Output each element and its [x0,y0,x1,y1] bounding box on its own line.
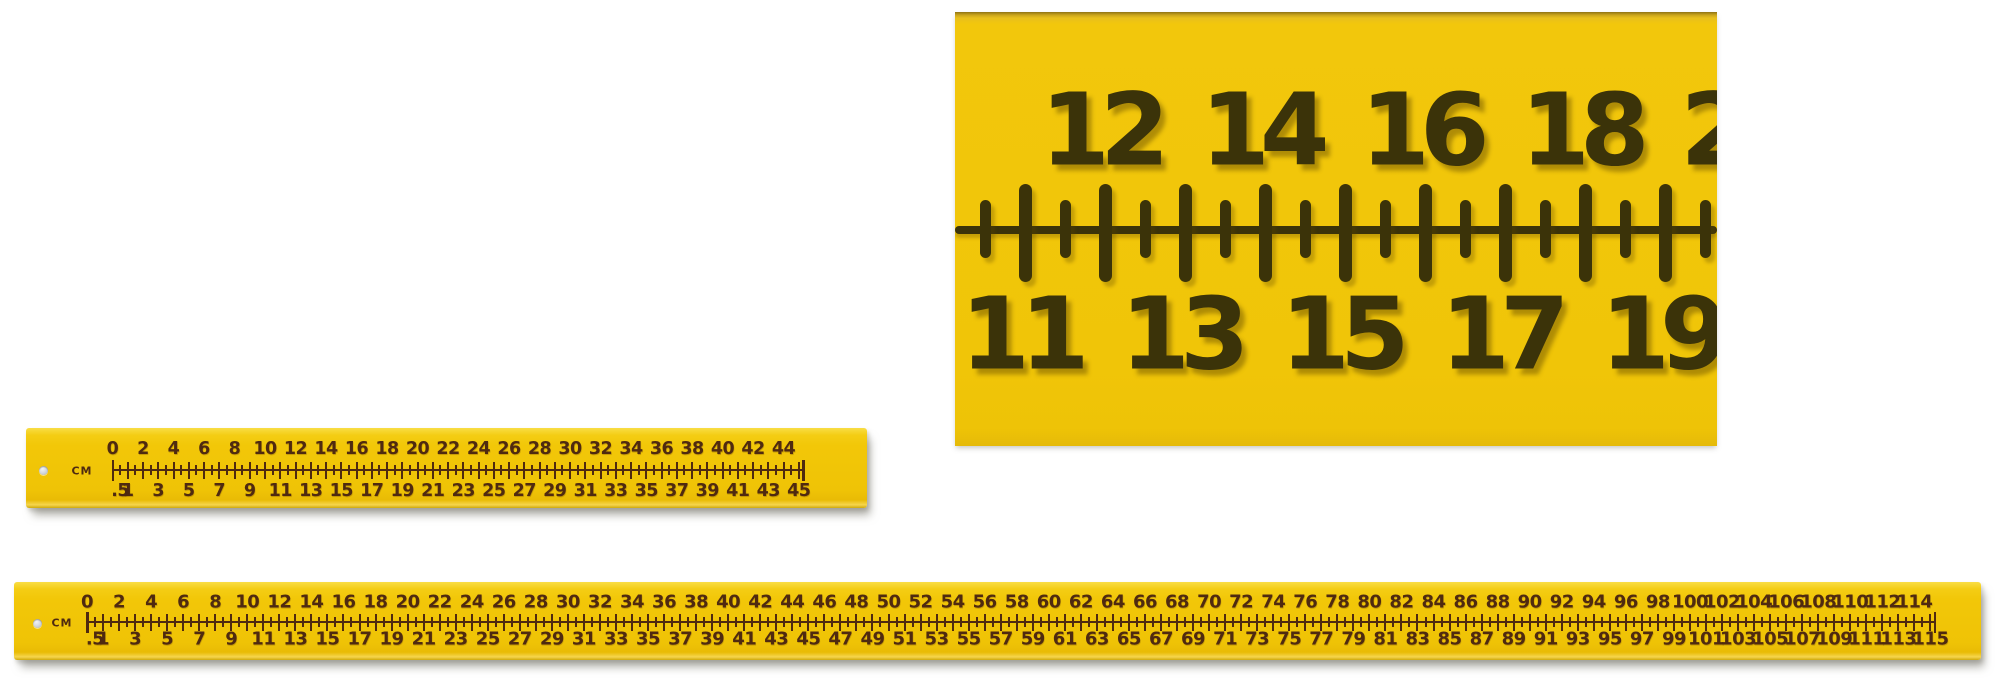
tick-mark [302,617,304,627]
cm-number: 103 [1720,628,1756,649]
tick-mark [1008,617,1010,627]
tick-mark [543,617,545,627]
cm-number: 11 [960,276,1089,393]
tick-mark [118,614,120,631]
tick-mark [211,465,213,475]
tick-mark [1521,617,1523,627]
cm-number: 50 [876,591,900,612]
cm-number: 36 [650,439,673,459]
tick-mark [310,614,312,631]
tick-mark [463,617,465,627]
tick-mark [1713,617,1715,627]
tick-mark [751,617,753,627]
cm-number: 86 [1454,591,1478,612]
cm-number: 18 [1520,72,1649,189]
tick-mark [1300,200,1311,258]
tick-mark [699,465,701,475]
tick-mark [623,617,625,627]
cm-number: 75 [1277,628,1301,649]
cm-number: 12 [1040,72,1169,189]
tick-mark [1441,617,1443,627]
cm-number: 20 [396,591,420,612]
tick-mark [1569,617,1571,627]
cm-number: 35 [636,628,660,649]
cm-number: 38 [680,439,703,459]
tick-mark [1905,617,1907,627]
tick-mark [302,465,304,475]
tick-mark [182,614,184,631]
cm-number: 46 [812,591,836,612]
tick-mark [1921,617,1923,627]
tick-mark [600,462,602,479]
tick-mark [1649,617,1651,627]
cm-number: 26 [497,439,520,459]
tick-mark [1745,617,1747,627]
tick-mark [1216,617,1218,627]
tick-mark [676,462,678,479]
cm-number: 100 [1672,591,1708,612]
cm-number: 112 [1864,591,1900,612]
tick-mark [591,617,593,627]
cm-number: 9 [244,481,256,501]
cm-number: 67 [1149,628,1173,649]
tick-mark [1088,617,1090,627]
cm-number: 58 [1005,591,1029,612]
tick-mark [622,465,624,475]
tick-mark [1024,617,1026,627]
cm-number: 82 [1389,591,1413,612]
cm-number: 38 [684,591,708,612]
hang-hole [33,619,42,628]
tick-mark [226,465,228,475]
cm-number: 24 [460,591,484,612]
tick-mark [1489,617,1491,627]
tick-mark [1019,184,1032,282]
tick-mark [1657,614,1659,631]
tick-mark [142,617,144,627]
tick-mark [687,617,689,627]
tick-mark [1344,617,1346,627]
tick-mark [1505,617,1507,627]
cm-number: 45 [796,628,820,649]
cm-number: 14 [299,591,323,612]
tick-mark [760,465,762,475]
cm-number: 10 [235,591,259,612]
tick-mark [1617,617,1619,627]
cm-number: 39 [696,481,719,501]
cm-number: 18 [375,439,398,459]
cm-number: 51 [892,628,916,649]
tick-mark [272,465,274,475]
tick-mark [342,614,344,631]
tick-mark [1080,614,1082,631]
cm-number: 19 [1600,276,1717,393]
cm-number: 44 [780,591,804,612]
cm-number: 61 [1053,628,1077,649]
cm-number: 115 [1912,628,1948,649]
tick-mark [1144,614,1146,631]
tick-mark [703,617,705,627]
tick-mark [1700,200,1711,258]
tick-mark [631,614,633,631]
cm-number: 0 [107,439,119,459]
tick-mark [653,465,655,475]
tick-mark [119,465,121,475]
hang-hole [39,466,48,475]
tick-mark [799,617,801,627]
cm-number: 79 [1341,628,1365,649]
cm-number: 11 [269,481,292,501]
tick-mark [1280,617,1282,627]
tick-mark [691,462,693,479]
cm-number: 60 [1037,591,1061,612]
tick-mark [527,617,529,627]
cm-number: 76 [1293,591,1317,612]
cm-number: 52 [909,591,933,612]
tick-mark [447,462,449,479]
tick-mark [190,617,192,627]
tick-mark [1729,617,1731,627]
tick-mark [1240,614,1242,631]
cm-number: 12 [267,591,291,612]
cm-number: 33 [604,628,628,649]
tick-mark [928,617,930,627]
tick-mark [1104,617,1106,627]
tick-mark [1259,184,1272,282]
cm-number: 30 [556,591,580,612]
cm-number: 9 [225,628,237,649]
tick-mark [607,617,609,627]
cm-number: 59 [1021,628,1045,649]
cm-number: 8 [229,439,241,459]
cm-number: 80 [1357,591,1381,612]
tick-mark [424,465,426,475]
tick-mark [1659,184,1672,282]
cm-number: 64 [1101,591,1125,612]
tick-mark [134,465,136,475]
cm-number: 21 [421,481,444,501]
cm-number: 16 [331,591,355,612]
tick-mark [737,462,739,479]
tick-mark [630,462,632,479]
tick-mark [195,465,197,475]
tick-mark [1419,184,1432,282]
tick-mark [1473,617,1475,627]
cm-number: 36 [652,591,676,612]
cm-number: 49 [860,628,884,649]
tick-mark [1553,617,1555,627]
cm-number: 37 [668,628,692,649]
cm-number: 98 [1646,591,1670,612]
tick-mark [798,462,800,479]
tick-mark [1465,614,1467,631]
tick-mark [394,465,396,475]
cm-number: 102 [1704,591,1740,612]
tick-mark [264,462,266,479]
tick-mark [790,465,792,475]
cm-number: 16 [1360,72,1489,189]
product-photo-collage: 12141618201113151719 CM 0246810121416182… [0,0,1999,684]
tick-mark [126,617,128,627]
cm-number: 47 [828,628,852,649]
tick-mark [340,462,342,479]
cm-number: 19 [391,481,414,501]
cm-number: 4 [145,591,157,612]
tick-mark [1433,614,1435,631]
tick-mark [1625,614,1627,631]
tick-mark [1232,617,1234,627]
cm-number: 6 [198,439,210,459]
tick-mark [668,465,670,475]
tick-mark [310,462,312,479]
cm-number: 53 [925,628,949,649]
cm-number: 2 [137,439,149,459]
tick-mark [1312,617,1314,627]
tick-mark [714,465,716,475]
tick-mark [729,465,731,475]
cm-number: 28 [528,439,551,459]
tick-mark [645,462,647,479]
tick-mark [180,465,182,475]
tick-mark [188,462,190,479]
tick-mark [1665,617,1667,627]
tick-mark [278,614,280,631]
cm-number: 83 [1405,628,1429,649]
ruler-115cm-photo: CM 0246810121416182022242628303234363840… [14,582,1981,660]
tick-mark [767,462,769,479]
tick-mark [1499,184,1512,282]
tick-mark [127,462,129,479]
tick-mark [471,614,473,631]
tick-mark [1304,614,1306,631]
tick-mark [317,465,319,475]
cm-number: 44 [772,439,795,459]
tick-mark [378,465,380,475]
cm-number: 29 [540,628,564,649]
tick-mark [671,617,673,627]
tick-mark [478,462,480,479]
cm-number: 28 [524,591,548,612]
tick-mark [371,462,373,479]
cm-number: 26 [492,591,516,612]
tick-mark [744,465,746,475]
tick-mark [569,462,571,479]
tick-mark [1873,617,1875,627]
cm-number: 41 [726,481,749,501]
tick-mark [157,462,159,479]
cm-number: 18 [364,591,388,612]
cm-number: 3 [129,628,141,649]
cm-number: 14 [1200,72,1329,189]
tick-mark [1633,617,1635,627]
tick-mark [783,462,785,479]
cm-number: 68 [1165,591,1189,612]
tick-mark [1140,200,1151,258]
tick-mark [439,465,441,475]
cm-number: 13 [283,628,307,649]
cm-number: 105 [1752,628,1788,649]
cm-number: 21 [412,628,436,649]
tick-mark [1248,617,1250,627]
tick-mark [1220,200,1231,258]
tick-mark [599,614,601,631]
cm-number: 20 [406,439,429,459]
cm-number: 55 [957,628,981,649]
tick-mark [1408,617,1410,627]
tick-mark [592,465,594,475]
tick-mark [1457,617,1459,627]
cm-number: 87 [1470,628,1494,649]
tick-mark [503,614,505,631]
tick-mark [348,465,350,475]
tick-mark [896,617,898,627]
tick-mark [479,617,481,627]
cm-number: 5 [161,628,173,649]
tick-mark [976,617,978,627]
cm-number: 14 [314,439,337,459]
tick-mark [1176,614,1178,631]
cm-number: 114 [1896,591,1932,612]
cm-number: 106 [1768,591,1804,612]
tick-mark [249,462,251,479]
tick-mark [1072,617,1074,627]
cm-number: 11 [251,628,275,649]
cm-number: 94 [1582,591,1606,612]
tick-mark [706,462,708,479]
cm-number: 13 [1120,276,1249,393]
tick-mark [94,617,96,627]
tick-mark [888,614,890,631]
cm-number: 2 [113,591,125,612]
tick-mark [1380,200,1391,258]
cm-number: 43 [764,628,788,649]
tick-mark [150,465,152,475]
cm-number: 43 [757,481,780,501]
cm-number: 37 [665,481,688,501]
cm-number: 17 [347,628,371,649]
tick-mark [1168,617,1170,627]
cm-number: 27 [513,481,536,501]
tick-mark [375,614,377,631]
tick-mark [1099,184,1112,282]
tick-mark [462,462,464,479]
tick-mark [279,462,281,479]
tick-mark [663,614,665,631]
tick-mark [879,617,881,627]
tick-mark [350,617,352,627]
cm-number: 65 [1117,628,1141,649]
tick-mark [783,617,785,627]
cm-number: 19 [380,628,404,649]
tick-mark [920,614,922,631]
tick-mark [363,465,365,475]
tick-mark [759,614,761,631]
tick-mark [1841,617,1843,627]
tick-mark [535,614,537,631]
tick-mark [432,462,434,479]
cm-number: 22 [436,439,459,459]
cm-number: 85 [1438,628,1462,649]
tick-mark [1697,617,1699,627]
tick-mark [1040,617,1042,627]
tick-mark [1889,617,1891,627]
tick-mark [447,617,449,627]
tick-mark [1681,617,1683,627]
tick-mark [1208,614,1210,631]
tick-mark [1360,617,1362,627]
cm-number: 66 [1133,591,1157,612]
cm-number: 110 [1832,591,1868,612]
tick-mark [531,465,533,475]
cm-number: 70 [1197,591,1221,612]
unit-label-cm: CM [71,465,92,478]
cm-number: 69 [1181,628,1205,649]
tick-mark [246,614,248,631]
tick-mark [173,462,175,479]
tick-mark [1048,614,1050,631]
tick-mark [431,617,433,627]
tick-mark [485,465,487,475]
tick-mark [815,617,817,627]
tick-mark [992,617,994,627]
cm-number: 17 [1440,276,1569,393]
cm-number: 17 [360,481,383,501]
tick-mark [1060,200,1071,258]
tick-mark [158,617,160,627]
tick-mark [863,617,865,627]
cm-number: 23 [444,628,468,649]
tick-mark [1336,614,1338,631]
tick-mark [638,465,640,475]
tick-mark [607,465,609,475]
tick-mark [615,462,617,479]
cm-number: 33 [604,481,627,501]
cm-number: 12 [284,439,307,459]
cm-number: 8 [209,591,221,612]
closeup-ruler-photo: 12141618201113151719 [955,12,1717,446]
cm-number: 89 [1502,628,1526,649]
tick-mark [325,462,327,479]
cm-number: 13 [299,481,322,501]
cm-number: 109 [1816,628,1852,649]
tick-mark [1296,617,1298,627]
cm-number: 6 [177,591,189,612]
cm-number: 32 [589,439,612,459]
tick-mark [539,462,541,479]
tick-mark [511,617,513,627]
tick-mark [1857,617,1859,627]
tick-mark [984,614,986,631]
cm-number: 29 [543,481,566,501]
tick-mark [334,617,336,627]
tick-mark [523,462,525,479]
tick-mark [847,617,849,627]
cm-number: 15 [315,628,339,649]
tick-mark [1368,614,1370,631]
tick-mark [1529,614,1531,631]
cm-number: 30 [558,439,581,459]
tick-mark [575,617,577,627]
cm-number: 15 [1280,276,1409,393]
tick-mark [639,617,641,627]
cm-number: 104 [1736,591,1772,612]
tick-mark [439,614,441,631]
tick-mark [584,462,586,479]
cm-number: 15 [330,481,353,501]
tick-mark [1184,617,1186,627]
tick-mark [831,617,833,627]
tick-mark [695,614,697,631]
